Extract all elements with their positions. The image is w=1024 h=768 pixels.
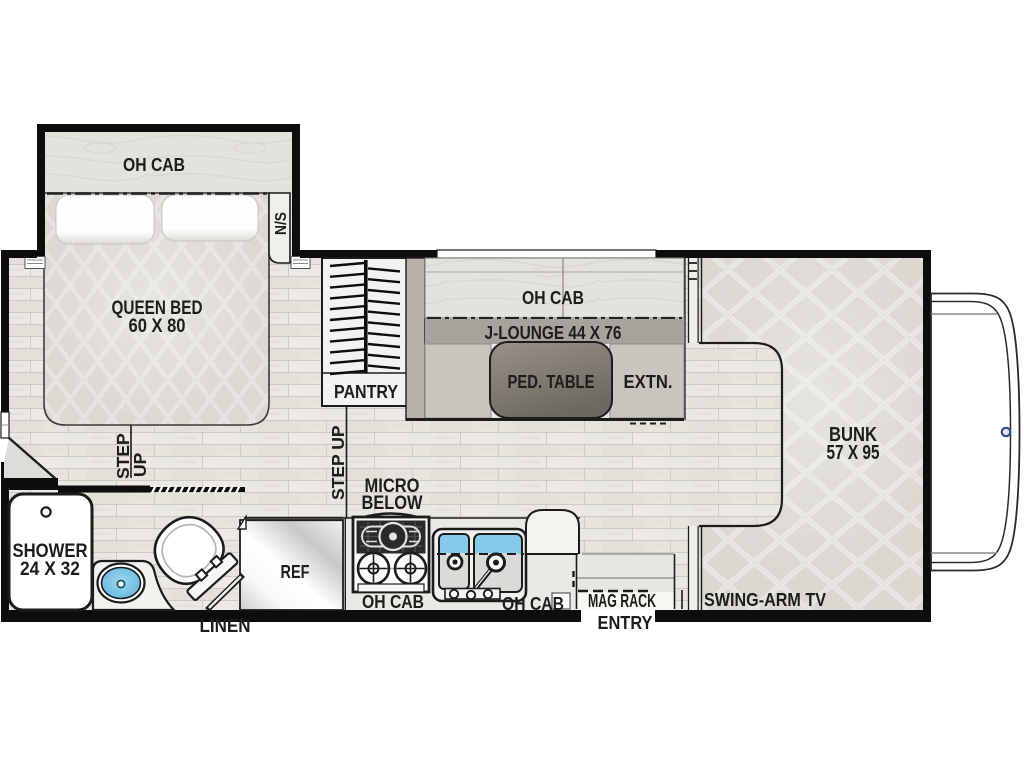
svg-text:SWING-ARM TV: SWING-ARM TV	[704, 589, 827, 610]
svg-text:60 X 80: 60 X 80	[129, 315, 186, 337]
svg-text:PED. TABLE: PED. TABLE	[508, 371, 595, 392]
svg-text:BELOW: BELOW	[362, 493, 423, 514]
svg-text:J-LOUNGE 44 X 76: J-LOUNGE 44 X 76	[485, 322, 622, 343]
svg-text:OH CAB: OH CAB	[502, 593, 564, 614]
svg-text:PANTRY: PANTRY	[334, 382, 398, 402]
svg-text:ENTRY: ENTRY	[598, 612, 654, 633]
svg-text:REF: REF	[281, 561, 310, 582]
svg-text:OH CAB: OH CAB	[362, 591, 424, 612]
svg-text:OH CAB: OH CAB	[123, 154, 185, 175]
svg-text:EXTN.: EXTN.	[624, 371, 673, 392]
svg-text:MAG RACK: MAG RACK	[588, 590, 656, 611]
svg-text:OH CAB: OH CAB	[522, 287, 584, 308]
svg-text:STEP UP: STEP UP	[328, 425, 348, 500]
svg-text:57 X 95: 57 X 95	[827, 442, 880, 464]
svg-text:LINEN: LINEN	[200, 615, 251, 636]
svg-text:UP: UP	[130, 452, 150, 477]
svg-text:N/S: N/S	[273, 212, 290, 235]
svg-text:24 X 32: 24 X 32	[20, 558, 80, 580]
